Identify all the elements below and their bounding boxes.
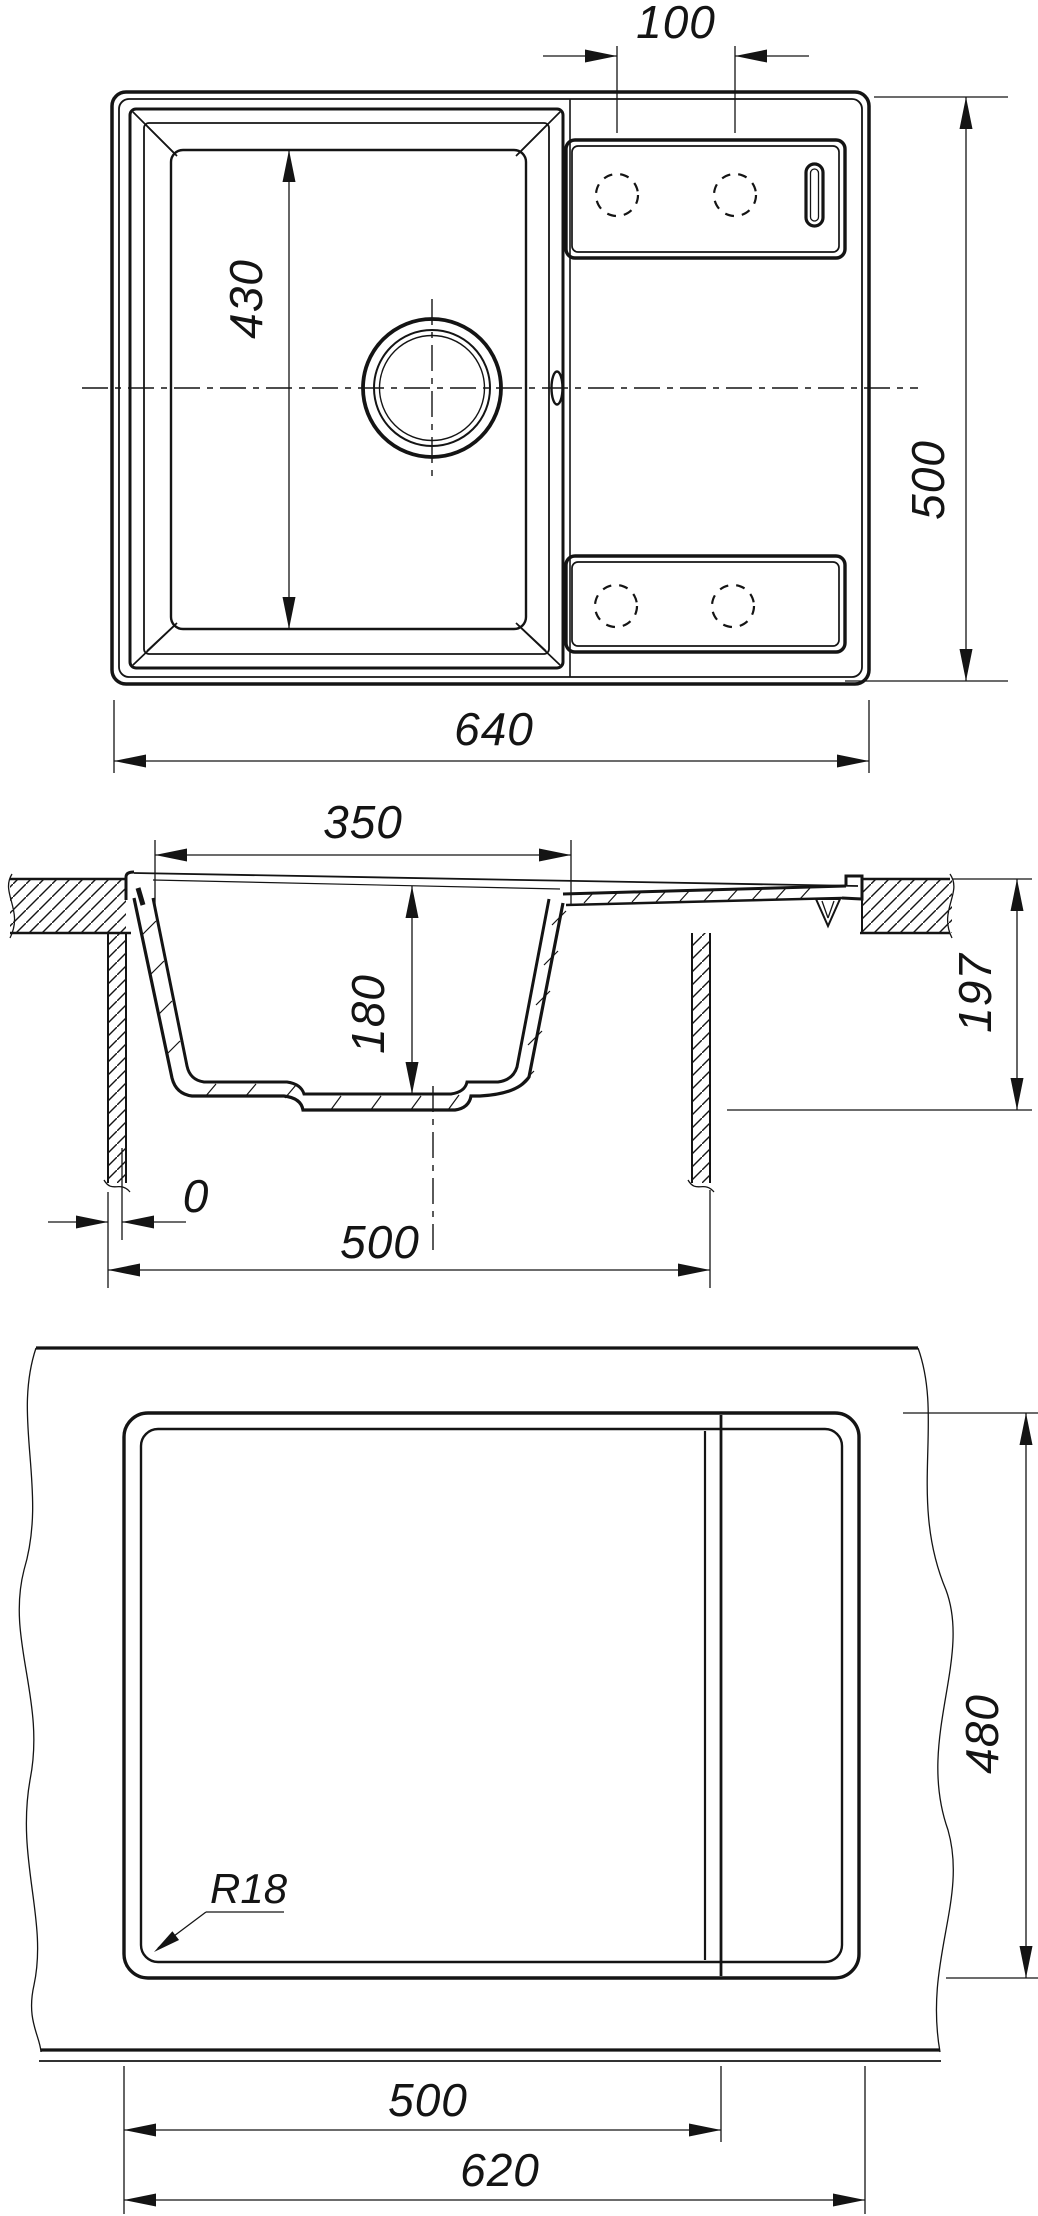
drawing-sheet: 100 500 640 430: [0, 0, 1038, 2216]
cabinet-wall-left: [104, 933, 130, 1192]
dim-label-500-cutout: 500: [388, 2074, 468, 2126]
dim-sink-width: 640: [114, 700, 869, 773]
dim-label-430: 430: [220, 259, 272, 339]
dim-bowl-depth: 180: [342, 886, 419, 1094]
seal-clip: [816, 899, 840, 926]
faucet-hole-right: [714, 174, 756, 216]
dim-label-500-top: 500: [902, 440, 954, 520]
dim-label-0: 0: [183, 1170, 210, 1222]
dim-label-100: 100: [636, 0, 716, 48]
dim-label-180: 180: [342, 974, 394, 1054]
countertop-left-slab: [9, 874, 131, 938]
dim-overall-width-bottom: 620: [124, 2066, 865, 2214]
sink-section-body: [126, 872, 862, 1256]
faucet-hole-left: [596, 174, 638, 216]
bowl-floor: [171, 150, 526, 629]
dim-label-r18: R18: [210, 1865, 288, 1912]
radius-callout: R18: [151, 1865, 288, 1956]
dim-label-350: 350: [323, 796, 403, 848]
cabinet-wall-right: [688, 933, 714, 1192]
sink-technical-drawing: 100 500 640 430: [0, 0, 1038, 2216]
faucet-hole-bottom-right: [712, 585, 754, 627]
dim-label-640: 640: [454, 703, 534, 755]
faucet-deck-top: [566, 140, 845, 258]
dim-bowl-top-width: 350: [155, 796, 571, 905]
dim-cutout-width: 500: [124, 2066, 721, 2214]
countertop-right-slab: [860, 874, 954, 938]
accessory-slot: [806, 164, 823, 226]
countertop-outline: [19, 1348, 953, 2061]
faucet-hole-bottom-left: [595, 585, 637, 627]
break-line-right: [918, 1348, 953, 2052]
dim-label-197: 197: [949, 953, 1001, 1033]
dim-cutout-depth: 480: [903, 1413, 1038, 1978]
faucet-deck-bottom: [566, 556, 845, 652]
dim-bowl-length: 430: [220, 150, 296, 629]
drainboard-section-top: [563, 886, 846, 894]
dim-label-500-section: 500: [340, 1216, 420, 1268]
section-view: 350 180 197 0: [9, 796, 1032, 1288]
top-view: 100 500 640 430: [82, 0, 1008, 773]
dim-faucet-spacing: 100: [543, 0, 809, 133]
cutout-view: R18 480 500 620: [19, 1348, 1038, 2214]
dim-label-480: 480: [956, 1694, 1008, 1774]
break-line-left: [19, 1348, 41, 2052]
dim-label-620: 620: [460, 2144, 540, 2196]
